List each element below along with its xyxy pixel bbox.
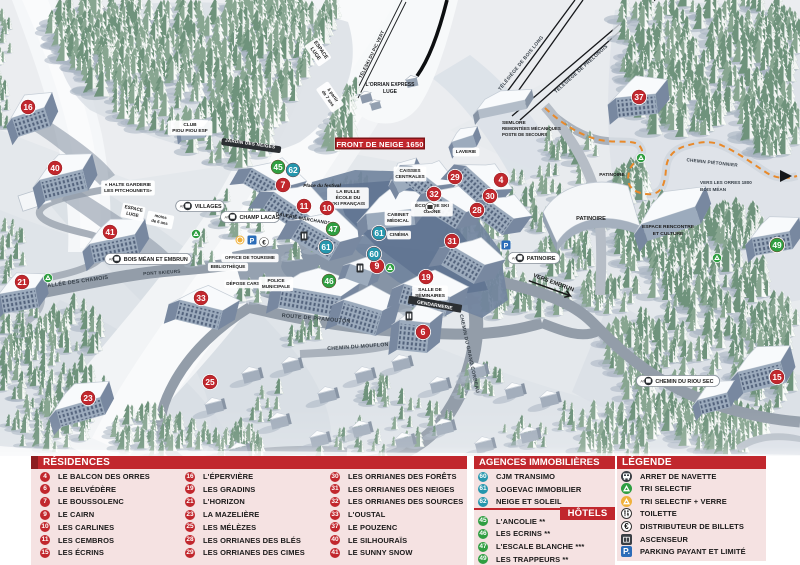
- svg-text:49: 49: [772, 240, 782, 250]
- svg-text:16: 16: [23, 102, 33, 112]
- svg-text:PIOU PIOU ESF: PIOU PIOU ESF: [172, 128, 208, 134]
- svg-text:BIBLIOTHÈQUE: BIBLIOTHÈQUE: [211, 262, 246, 269]
- svg-text:BOIS MÉAN: BOIS MÉAN: [700, 185, 727, 192]
- svg-text:47: 47: [328, 224, 338, 234]
- svg-text:FRONT DE NEIGE 1650: FRONT DE NEIGE 1650: [336, 140, 423, 149]
- svg-text:45: 45: [273, 162, 283, 172]
- svg-text:41: 41: [105, 227, 115, 237]
- svg-text:CAISSES: CAISSES: [399, 168, 421, 174]
- svg-text:REMONTÉES MÉCANIQUES: REMONTÉES MÉCANIQUES: [502, 126, 561, 131]
- svg-text:33: 33: [196, 293, 206, 303]
- svg-text:LUGE: LUGE: [383, 89, 398, 95]
- svg-text:ET CULTURE: ET CULTURE: [653, 231, 684, 237]
- svg-text:25: 25: [205, 377, 215, 387]
- svg-text:37: 37: [634, 92, 644, 102]
- svg-text:23: 23: [83, 393, 93, 403]
- svg-text:CENTRALES: CENTRALES: [395, 174, 425, 180]
- svg-text:P: P: [504, 243, 509, 250]
- svg-text:« HALTE GARDERIE: « HALTE GARDERIE: [105, 182, 152, 188]
- svg-text:POLICE: POLICE: [267, 278, 284, 283]
- svg-text:LA BULLE: LA BULLE: [336, 189, 360, 195]
- svg-text:CLUB: CLUB: [183, 122, 197, 128]
- svg-text:9: 9: [375, 261, 380, 271]
- svg-text:MUNICIPALE: MUNICIPALE: [262, 284, 290, 289]
- svg-text:SKI FRANÇAIS: SKI FRANÇAIS: [331, 201, 366, 207]
- svg-text:LES PITCHOUNETS»: LES PITCHOUNETS»: [104, 188, 152, 194]
- svg-text:POSTE DE SECOURS: POSTE DE SECOURS: [502, 132, 547, 137]
- svg-text:28: 28: [472, 205, 482, 215]
- svg-text:L'ORRIAN EXPRESS: L'ORRIAN EXPRESS: [366, 82, 416, 88]
- svg-text:46: 46: [324, 276, 334, 286]
- svg-text:10: 10: [322, 203, 332, 213]
- svg-text:30: 30: [485, 191, 495, 201]
- svg-text:7: 7: [281, 180, 286, 190]
- svg-text:60: 60: [369, 249, 379, 259]
- svg-text:€: €: [262, 240, 266, 247]
- svg-text:31: 31: [447, 236, 457, 246]
- svg-text:PATINOIRE: PATINOIRE: [576, 216, 606, 222]
- svg-text:CHAMP LACAS: CHAMP LACAS: [240, 215, 280, 221]
- svg-text:21: 21: [17, 277, 27, 287]
- svg-text:11: 11: [300, 201, 309, 211]
- svg-text:BOIS MÉAN ET EMBRUN: BOIS MÉAN ET EMBRUN: [124, 255, 188, 263]
- svg-text:32: 32: [429, 189, 439, 199]
- svg-text:62: 62: [288, 165, 298, 175]
- svg-text:PATINOIRE: PATINOIRE: [599, 172, 625, 178]
- svg-text:61: 61: [374, 228, 384, 238]
- svg-text:6: 6: [421, 327, 426, 337]
- svg-text:40: 40: [50, 163, 60, 173]
- svg-text:VERS LES ORRES 1800: VERS LES ORRES 1800: [700, 180, 752, 185]
- svg-text:OFFICE DE TOURISME: OFFICE DE TOURISME: [225, 255, 275, 260]
- svg-text:SALLE DE: SALLE DE: [418, 287, 443, 293]
- svg-text:4: 4: [499, 175, 504, 185]
- svg-text:P: P: [250, 238, 255, 245]
- svg-text:PATINOIRE: PATINOIRE: [527, 256, 556, 262]
- svg-text:VILLAGES: VILLAGES: [195, 204, 222, 210]
- svg-text:CABINET: CABINET: [387, 212, 408, 218]
- svg-text:15: 15: [772, 372, 782, 382]
- svg-text:61: 61: [321, 242, 331, 252]
- svg-text:LAVERIE: LAVERIE: [456, 149, 477, 155]
- svg-text:29: 29: [450, 172, 460, 182]
- svg-text:19: 19: [421, 272, 431, 282]
- svg-text:CHEMIN DU RIOU SEC: CHEMIN DU RIOU SEC: [655, 379, 713, 385]
- svg-text:ESPACE RENCONTRE: ESPACE RENCONTRE: [642, 224, 695, 230]
- svg-text:DÉPOSE CARS: DÉPOSE CARS: [226, 279, 259, 286]
